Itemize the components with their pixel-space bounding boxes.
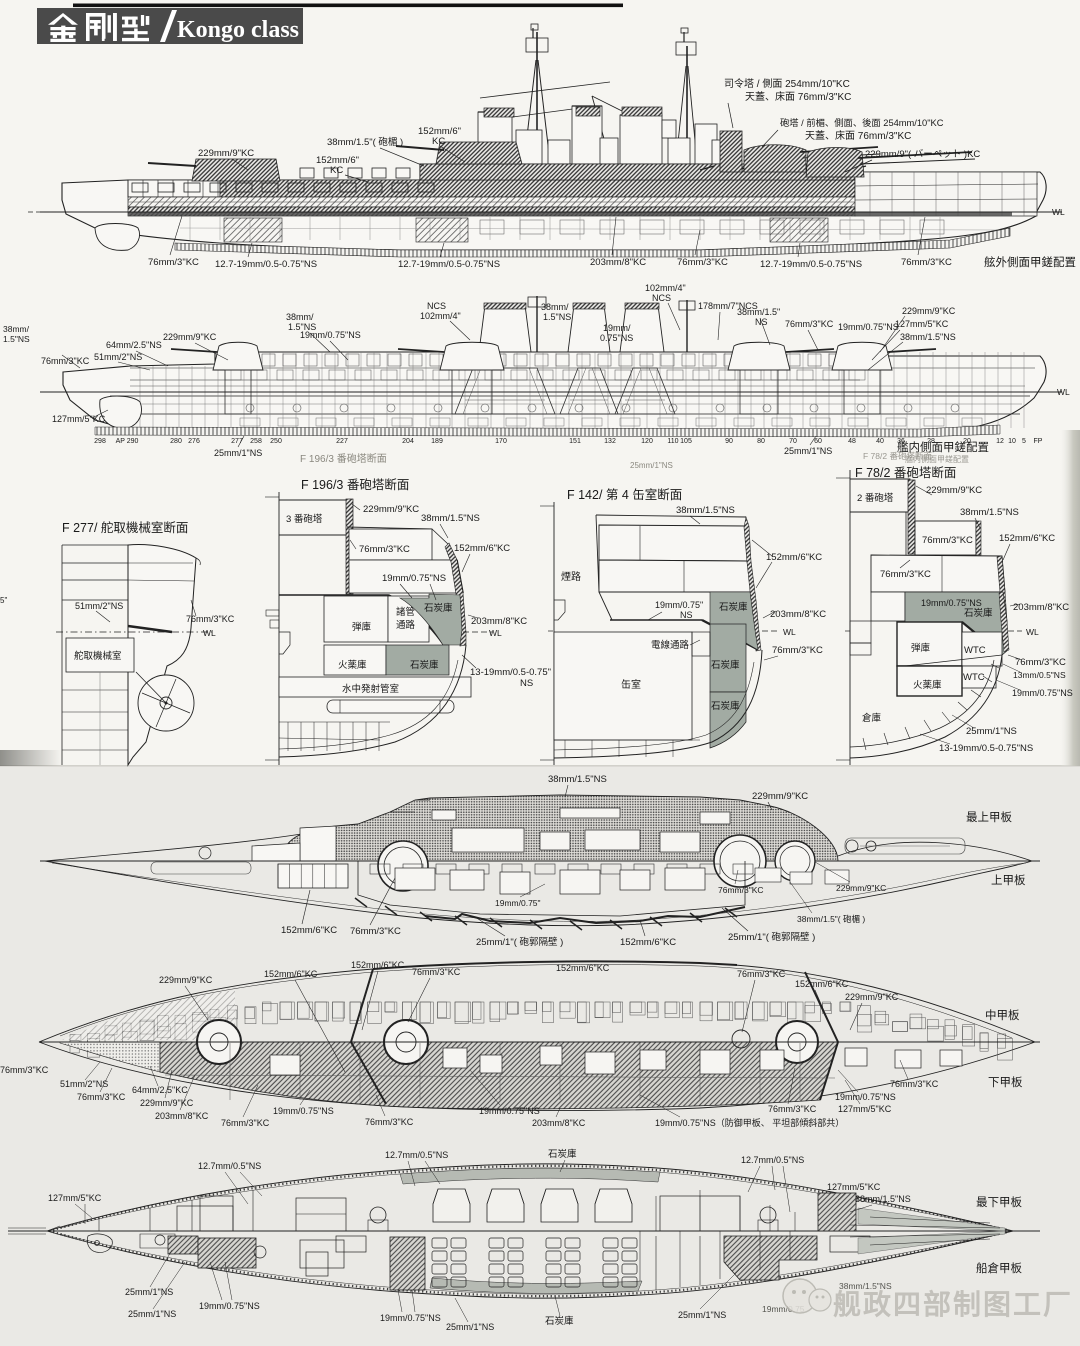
svg-text:51mm/2"NS: 51mm/2"NS [60, 1079, 108, 1089]
svg-text:229mm/9"KC: 229mm/9"KC [752, 791, 808, 802]
svg-text:64mm/2.5"KC: 64mm/2.5"KC [132, 1085, 188, 1095]
svg-text:石炭庫: 石炭庫 [719, 601, 748, 613]
svg-text:WL: WL [1052, 207, 1065, 217]
svg-text:70: 70 [789, 438, 797, 445]
svg-text:倉庫: 倉庫 [862, 712, 882, 724]
svg-text:203mm/8"KC: 203mm/8"KC [155, 1111, 209, 1121]
svg-text:上甲板: 上甲板 [991, 873, 1026, 887]
svg-text:127mm/5"KC: 127mm/5"KC [838, 1104, 892, 1114]
svg-text:19mm/0.75"NS: 19mm/0.75"NS [838, 322, 899, 332]
svg-text:229mm/9"KC: 229mm/9"KC [140, 1098, 194, 1108]
svg-text:152mm/6"KC: 152mm/6"KC [556, 963, 610, 973]
svg-text:38mm/: 38mm/ [3, 324, 30, 334]
svg-text:38mm/1.5"NS: 38mm/1.5"NS [900, 332, 956, 342]
svg-text:38mm/1.5"NS: 38mm/1.5"NS [548, 774, 607, 785]
svg-text:舵取機械室: 舵取機械室 [74, 650, 122, 662]
svg-text:12.7-19mm/0.5-0.75"NS: 12.7-19mm/0.5-0.75"NS [760, 259, 862, 270]
svg-text:40: 40 [876, 438, 884, 445]
svg-text:19mm/0.75"NS: 19mm/0.75"NS [479, 1106, 540, 1116]
svg-text:19mm/0.75"NS: 19mm/0.75"NS [921, 598, 982, 608]
svg-text:203mm/8"KC: 203mm/8"KC [1013, 602, 1069, 613]
svg-text:38mm/1.5"( 砲楣 ): 38mm/1.5"( 砲楣 ) [797, 914, 865, 924]
svg-text:KC: KC [330, 165, 343, 176]
svg-text:NS: NS [680, 610, 693, 620]
svg-text:229mm/9"( バーペット )KC: 229mm/9"( バーペット )KC [865, 149, 980, 160]
svg-text:229mm/9"KC: 229mm/9"KC [845, 992, 899, 1002]
svg-text:19mm/0.75"NS: 19mm/0.75"NS [380, 1313, 441, 1323]
svg-text:38mm/1.5"NS: 38mm/1.5"NS [855, 1194, 911, 1204]
svg-text:F 142/ 第 4 缶室断面: F 142/ 第 4 缶室断面 [567, 487, 682, 502]
svg-text:38mm/: 38mm/ [541, 302, 569, 312]
svg-text:弾庫: 弾庫 [911, 642, 931, 654]
svg-text:WTC: WTC [964, 645, 986, 656]
svg-text:102mm/4": 102mm/4" [645, 283, 686, 293]
svg-text:25mm/1"( 砲郭隔壁 ): 25mm/1"( 砲郭隔壁 ) [476, 936, 563, 948]
svg-text:19mm/0.75"NS: 19mm/0.75"NS [382, 573, 446, 584]
svg-text:火薬庫: 火薬庫 [913, 679, 942, 691]
svg-text:120: 120 [641, 438, 653, 445]
svg-text:132: 132 [604, 438, 616, 445]
svg-text:38mm/1.5"NS: 38mm/1.5"NS [960, 507, 1019, 518]
svg-text:WL: WL [203, 628, 216, 638]
svg-text:10: 10 [1008, 438, 1016, 445]
svg-text:76mm/3"KC: 76mm/3"KC [880, 569, 931, 580]
svg-text:KC: KC [432, 136, 445, 147]
svg-text:60: 60 [814, 438, 822, 445]
svg-text:229mm/9"KC: 229mm/9"KC [198, 148, 254, 159]
svg-text:Kongo class: Kongo class [177, 17, 299, 43]
svg-text:25mm/1"NS: 25mm/1"NS [128, 1309, 176, 1319]
svg-text:38mm/1.5"( 砲楣 ): 38mm/1.5"( 砲楣 ) [327, 136, 403, 148]
svg-text:砲塔 / 前楣、側面、後面 254mm/10"KC: 砲塔 / 前楣、側面、後面 254mm/10"KC [780, 117, 944, 128]
svg-text:石炭庫: 石炭庫 [548, 1148, 577, 1160]
svg-text:38mm/1.5"NS: 38mm/1.5"NS [676, 505, 735, 516]
svg-text:229mm/9"KC: 229mm/9"KC [163, 332, 217, 342]
svg-text:203mm/8"KC: 203mm/8"KC [532, 1118, 586, 1128]
svg-text:76mm/3"KC: 76mm/3"KC [890, 1079, 939, 1089]
svg-text:151: 151 [569, 438, 581, 445]
svg-text:F 78/2 番砲塔断面: F 78/2 番砲塔断面 [863, 451, 932, 461]
svg-text:127mm/5"KC: 127mm/5"KC [827, 1182, 881, 1192]
svg-text:19mm/0.75"NS: 19mm/0.75"NS [1012, 688, 1073, 698]
svg-text:76mm/3"KC: 76mm/3"KC [186, 614, 235, 624]
svg-text:天蓋、床面 76mm/3"KC: 天蓋、床面 76mm/3"KC [745, 90, 851, 103]
svg-text:76mm/3"KC: 76mm/3"KC [785, 319, 834, 329]
svg-text:76mm/3"KC: 76mm/3"KC [221, 1118, 270, 1128]
svg-text:舷外側面甲鎈配置: 舷外側面甲鎈配置 [984, 255, 1076, 269]
svg-text:152mm/6"KC: 152mm/6"KC [766, 552, 822, 563]
svg-text:76mm/3"KC: 76mm/3"KC [350, 926, 401, 937]
svg-text:12.7mm/0.5"NS: 12.7mm/0.5"NS [385, 1150, 448, 1160]
svg-text:229mm/9"KC: 229mm/9"KC [363, 504, 419, 515]
svg-text:13mm/0.5"NS: 13mm/0.5"NS [1013, 670, 1066, 680]
svg-text:5: 5 [1022, 438, 1026, 445]
svg-text:19mm/: 19mm/ [603, 323, 631, 333]
svg-text:152mm/6"KC: 152mm/6"KC [351, 960, 405, 970]
svg-text:203mm/8"KC: 203mm/8"KC [590, 257, 646, 268]
svg-text:19mm/0.75"NS: 19mm/0.75"NS [835, 1092, 896, 1102]
svg-text:19mm/0.75"NS: 19mm/0.75"NS [199, 1301, 260, 1311]
svg-text:76mm/3"KC: 76mm/3"KC [412, 967, 461, 977]
svg-text:最下甲板: 最下甲板 [976, 1195, 1022, 1209]
svg-text:80: 80 [757, 438, 765, 445]
svg-text:276: 276 [188, 438, 200, 445]
svg-text:WL: WL [1057, 387, 1070, 397]
svg-text:1.5"NS: 1.5"NS [288, 322, 316, 332]
svg-text:25mm/1"NS: 25mm/1"NS [678, 1310, 726, 1320]
svg-text:229mm/9"KC: 229mm/9"KC [159, 975, 213, 985]
svg-text:WL: WL [1026, 627, 1039, 637]
svg-text:12.7-19mm/0.5-0.75"NS: 12.7-19mm/0.5-0.75"NS [215, 259, 317, 270]
svg-text:51mm/2"NS: 51mm/2"NS [94, 352, 142, 362]
svg-text:最上甲板: 最上甲板 [966, 810, 1012, 824]
svg-text:170: 170 [495, 438, 507, 445]
svg-text:下甲板: 下甲板 [988, 1075, 1023, 1089]
svg-text:229mm/9"KC: 229mm/9"KC [902, 306, 956, 316]
svg-text:諸管: 諸管 [396, 606, 415, 618]
svg-text:19mm/0.75": 19mm/0.75" [655, 600, 703, 610]
svg-text:229mm/9"KC: 229mm/9"KC [836, 883, 886, 893]
svg-text:2 番砲塔: 2 番砲塔 [857, 492, 894, 504]
svg-text:258: 258 [250, 438, 262, 445]
svg-text:25mm/1"NS: 25mm/1"NS [446, 1322, 494, 1332]
svg-text:76mm/3"KC: 76mm/3"KC [77, 1092, 126, 1102]
svg-text:76mm/3"KC: 76mm/3"KC [1015, 657, 1066, 668]
svg-text:227: 227 [336, 438, 348, 445]
svg-text:F 196/3 番砲塔断面: F 196/3 番砲塔断面 [301, 477, 409, 492]
svg-text:48: 48 [848, 438, 856, 445]
svg-text:石炭庫: 石炭庫 [711, 659, 740, 671]
svg-text:火薬庫: 火薬庫 [338, 659, 367, 671]
svg-text:12.7-19mm/0.5-0.75"NS: 12.7-19mm/0.5-0.75"NS [398, 259, 500, 270]
svg-text:12.7mm/0.5"NS: 12.7mm/0.5"NS [741, 1155, 804, 1165]
svg-text:煙路: 煙路 [561, 570, 581, 583]
svg-text:204: 204 [402, 438, 414, 445]
svg-text:通路: 通路 [396, 619, 416, 631]
svg-text:127mm/5"KC: 127mm/5"KC [895, 319, 949, 329]
svg-text:102mm/4": 102mm/4" [420, 311, 461, 321]
svg-text:25mm/1"NS: 25mm/1"NS [784, 446, 832, 456]
svg-text:25mm/1"NS: 25mm/1"NS [125, 1287, 173, 1297]
svg-text:152mm/6"KC: 152mm/6"KC [620, 937, 676, 948]
svg-text:0.75"NS: 0.75"NS [600, 333, 633, 343]
svg-text:25mm/1"NS: 25mm/1"NS [630, 461, 673, 470]
svg-text:船倉甲板: 船倉甲板 [976, 1261, 1022, 1275]
svg-text:189: 189 [431, 438, 443, 445]
svg-text:127mm/5"KC: 127mm/5"KC [48, 1193, 102, 1203]
svg-text:38mm/1.5"NS: 38mm/1.5"NS [421, 513, 480, 524]
svg-text:F 277/ 舵取機械室断面: F 277/ 舵取機械室断面 [62, 520, 188, 535]
svg-text:WTC: WTC [963, 672, 985, 683]
svg-text:石炭庫: 石炭庫 [424, 602, 453, 614]
svg-text:152mm/6"KC: 152mm/6"KC [281, 925, 337, 936]
svg-text:電線通路: 電線通路 [651, 639, 690, 651]
svg-text:WL: WL [783, 627, 796, 637]
svg-text:152mm/6"KC: 152mm/6"KC [999, 533, 1055, 544]
svg-text:250: 250 [270, 438, 282, 445]
svg-text:76mm/3"KC: 76mm/3"KC [737, 969, 786, 979]
svg-text:152mm/6"KC: 152mm/6"KC [454, 543, 510, 554]
svg-text:AP 290: AP 290 [116, 438, 139, 445]
svg-text:12: 12 [996, 438, 1004, 445]
svg-text:舰政四部制图工厂: 舰政四部制图工厂 [833, 1289, 1073, 1320]
svg-text:110: 110 [667, 438, 678, 445]
svg-text:F 78/2 番砲塔断面: F 78/2 番砲塔断面 [855, 465, 956, 480]
svg-text:76mm/3"KC: 76mm/3"KC [677, 257, 728, 268]
svg-text:19mm/0.75"NS: 19mm/0.75"NS [273, 1106, 334, 1116]
svg-text:298: 298 [94, 438, 106, 445]
svg-text:12.7mm/0.5"NS: 12.7mm/0.5"NS [198, 1161, 261, 1171]
svg-text:152mm/6"KC: 152mm/6"KC [795, 979, 849, 989]
svg-text:25mm/1"NS: 25mm/1"NS [214, 448, 262, 458]
svg-text:64mm/2.5"NS: 64mm/2.5"NS [106, 340, 162, 350]
svg-text:203mm/8"KC: 203mm/8"KC [471, 616, 527, 627]
svg-text:76mm/3"KC: 76mm/3"KC [922, 535, 973, 546]
svg-text:90: 90 [725, 438, 733, 445]
svg-text:石炭庫: 石炭庫 [545, 1315, 574, 1327]
svg-text:38mm/1.5": 38mm/1.5" [737, 307, 780, 317]
svg-text:缶室: 缶室 [621, 678, 641, 691]
svg-text:中甲板: 中甲板 [985, 1008, 1020, 1022]
svg-text:229mm/9"KC: 229mm/9"KC [926, 485, 982, 496]
svg-text:203mm/8"KC: 203mm/8"KC [770, 609, 826, 620]
svg-text:5": 5" [0, 596, 7, 605]
svg-text:152mm/6"KC: 152mm/6"KC [264, 969, 318, 979]
svg-text:76mm/3"KC: 76mm/3"KC [365, 1117, 414, 1127]
svg-text:280: 280 [170, 438, 182, 445]
svg-text:76mm/3"KC: 76mm/3"KC [718, 885, 764, 895]
svg-text:19mm/0.75"NS（防御甲板、 平坦部傾斜部共）: 19mm/0.75"NS（防御甲板、 平坦部傾斜部共） [655, 1117, 844, 1128]
svg-text:38mm/: 38mm/ [286, 312, 314, 322]
svg-text:水中発射管室: 水中発射管室 [342, 683, 399, 695]
svg-text:1.5"NS: 1.5"NS [3, 334, 30, 344]
svg-text:石炭庫: 石炭庫 [964, 607, 993, 619]
svg-text:76mm/3"KC: 76mm/3"KC [901, 257, 952, 268]
svg-text:19mm/0.75": 19mm/0.75" [495, 898, 541, 908]
svg-text:NCS: NCS [427, 301, 446, 311]
svg-text:NS: NS [520, 678, 533, 689]
svg-text:3 番砲塔: 3 番砲塔 [286, 513, 323, 525]
svg-text:弾庫: 弾庫 [352, 621, 372, 633]
svg-text:76mm/3"KC: 76mm/3"KC [359, 544, 410, 555]
svg-text:76mm/3"KC: 76mm/3"KC [768, 1104, 817, 1114]
svg-text:WL: WL [489, 628, 502, 638]
svg-text:51mm/2"NS: 51mm/2"NS [75, 601, 123, 611]
svg-text:FP: FP [1034, 438, 1043, 445]
svg-text:13-19mm/0.5-0.75": 13-19mm/0.5-0.75" [470, 667, 551, 678]
svg-text:F 196/3 番砲塔断面: F 196/3 番砲塔断面 [300, 452, 387, 465]
svg-text:13-19mm/0.5-0.75"NS: 13-19mm/0.5-0.75"NS [939, 743, 1033, 754]
svg-text:石炭庫: 石炭庫 [410, 659, 439, 671]
svg-text:76mm/3"KC: 76mm/3"KC [772, 645, 823, 656]
svg-text:司令塔 / 側面 254mm/10"KC: 司令塔 / 側面 254mm/10"KC [724, 77, 850, 90]
svg-text:76mm/3"KC: 76mm/3"KC [148, 257, 199, 268]
svg-text:25mm/1"( 砲郭隔壁 ): 25mm/1"( 砲郭隔壁 ) [728, 931, 815, 943]
svg-text:105: 105 [680, 438, 692, 445]
svg-text:天蓋、床面 76mm/3"KC: 天蓋、床面 76mm/3"KC [805, 129, 911, 142]
svg-text:76mm/3"KC: 76mm/3"KC [0, 1065, 49, 1075]
svg-text:NCS: NCS [652, 293, 671, 303]
svg-text:石炭庫: 石炭庫 [711, 700, 740, 712]
svg-text:1.5"NS: 1.5"NS [543, 312, 571, 322]
